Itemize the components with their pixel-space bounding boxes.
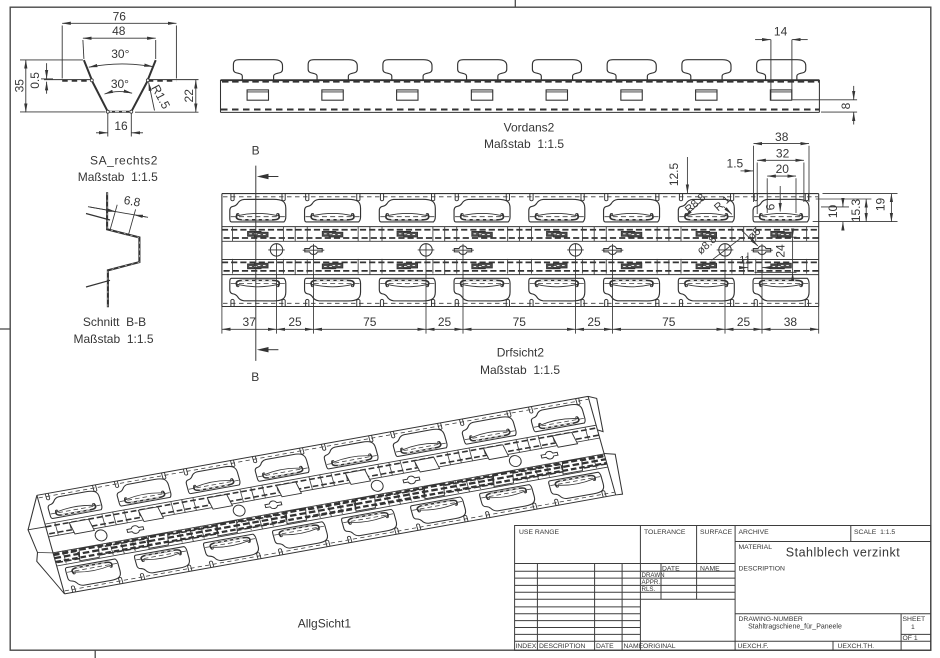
svg-text:22: 22 [182,89,196,103]
svg-text:11: 11 [739,255,750,267]
svg-text:Drfsicht2: Drfsicht2 [497,346,545,360]
svg-text:B: B [252,144,260,158]
svg-text:B: B [251,370,259,384]
svg-text:NAME: NAME [624,643,644,650]
svg-text:76: 76 [113,10,127,24]
svg-text:38: 38 [784,315,798,329]
svg-text:75: 75 [662,315,676,329]
svg-text:DATE: DATE [662,566,680,573]
svg-text:25: 25 [587,315,601,329]
svg-text:SURFACE: SURFACE [700,529,733,536]
svg-text:37: 37 [243,315,257,329]
svg-text:30°: 30° [111,47,129,61]
svg-text:DESCRIPTION: DESCRIPTION [739,566,786,573]
svg-text:35: 35 [13,79,27,93]
svg-text:14: 14 [774,24,788,38]
svg-text:6.8: 6.8 [123,193,142,210]
svg-text:75: 75 [513,315,527,329]
svg-text:ORIGINAL: ORIGINAL [643,643,676,650]
svg-text:DRAWN: DRAWN [642,572,665,579]
svg-text:15.3: 15.3 [849,198,863,222]
svg-text:30°: 30° [111,77,129,91]
svg-text:Maßstab 1:1.5: Maßstab 1:1.5 [78,170,158,184]
svg-text:75: 75 [363,315,377,329]
svg-text:Maßstab 1:1.5: Maßstab 1:1.5 [73,332,153,346]
svg-text:SCALE 1:1.5: SCALE 1:1.5 [854,529,895,536]
svg-text:32: 32 [776,146,790,160]
svg-text:RLS.: RLS. [642,586,656,593]
svg-text:SA_rechts2: SA_rechts2 [90,154,158,168]
svg-text:6: 6 [764,203,778,210]
svg-text:AllgSicht1: AllgSicht1 [298,616,352,630]
svg-text:16: 16 [114,119,128,133]
svg-text:8: 8 [839,102,853,109]
svg-text:TOLERANCE: TOLERANCE [644,529,686,536]
svg-text:1.5: 1.5 [727,157,744,171]
svg-text:25: 25 [288,315,302,329]
svg-text:MATERIAL: MATERIAL [739,544,773,551]
svg-text:19: 19 [874,198,888,212]
svg-text:38: 38 [775,130,789,144]
svg-text:25: 25 [737,315,751,329]
svg-text:0.5: 0.5 [28,72,42,89]
svg-text:SHEET: SHEET [903,616,926,623]
svg-text:48: 48 [112,24,126,38]
svg-text:Vordans2: Vordans2 [504,121,555,135]
svg-text:DATE: DATE [596,643,614,650]
svg-text:INDEX: INDEX [516,643,537,650]
svg-text:UEXCH.TH.: UEXCH.TH. [838,643,875,650]
svg-text:10: 10 [826,205,840,219]
svg-text:Maßstab 1:1.5: Maßstab 1:1.5 [484,137,564,151]
svg-text:12.5: 12.5 [667,162,681,186]
svg-text:NAME: NAME [700,566,720,573]
svg-text:APPR.: APPR. [642,579,661,586]
svg-text:Maßstab 1:1.5: Maßstab 1:1.5 [480,363,560,377]
svg-text:ARCHIVE: ARCHIVE [739,529,770,536]
svg-text:Stahlblech verzinkt: Stahlblech verzinkt [786,546,900,560]
svg-text:24: 24 [774,244,788,258]
svg-text:20: 20 [776,162,790,176]
svg-text:1: 1 [911,624,915,631]
svg-text:UEXCH.F.: UEXCH.F. [738,643,769,650]
svg-text:Stahltragschiene_für_Paneele: Stahltragschiene_für_Paneele [748,624,842,631]
svg-text:DRAWING-NUMBER: DRAWING-NUMBER [739,616,803,623]
svg-text:Schnitt B-B: Schnitt B-B [83,315,146,329]
svg-text:25: 25 [438,315,452,329]
svg-text:USE RANGE: USE RANGE [519,529,560,536]
svg-text:DESCRIPTION: DESCRIPTION [539,643,586,650]
svg-text:OF 1: OF 1 [903,635,918,642]
